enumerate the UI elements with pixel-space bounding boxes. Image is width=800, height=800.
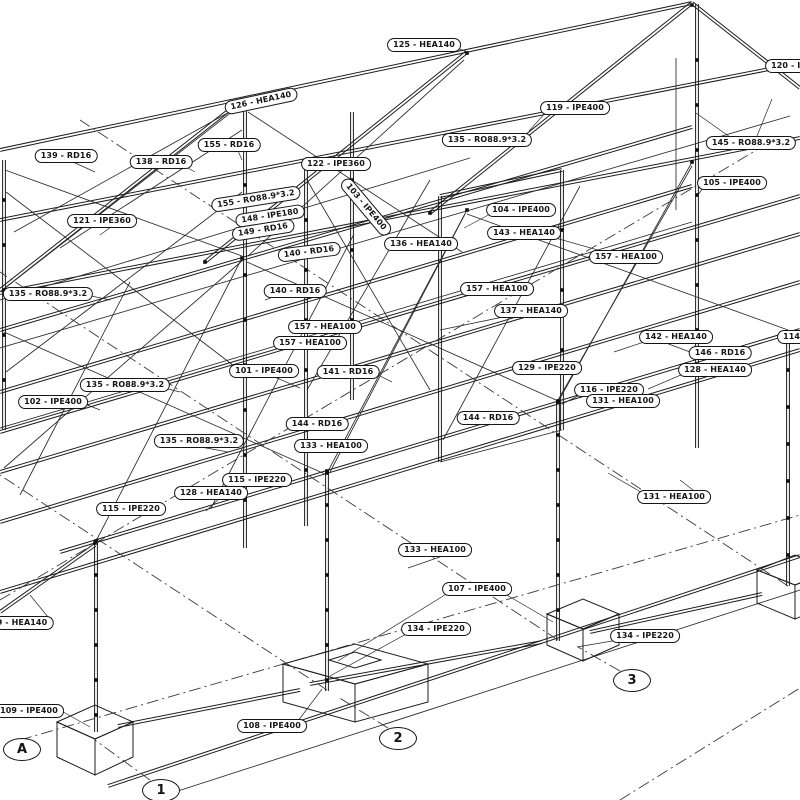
cad-drawing-canvas: 125 - HEA140126 - HEA140119 - IPE400120 … <box>0 0 800 800</box>
member-label: 136 - HEA140 <box>384 237 458 251</box>
member-label: 115 - IPE220 <box>96 502 166 516</box>
member-label: 134 - IPE220 <box>401 622 471 636</box>
member-label: 115 - IPE220 <box>222 473 292 487</box>
member-label: 135 - RO88.9*3.2 <box>442 133 532 147</box>
member-label: 140 - RD16 <box>277 241 341 263</box>
member-label: 157 - HEA100 <box>460 282 534 296</box>
member-label: 143 - HEA140 <box>487 226 561 240</box>
member-label: 157 - HEA100 <box>589 250 663 264</box>
member-label: 133 - HEA100 <box>294 439 368 453</box>
member-label: 109 - IPE400 <box>0 704 64 718</box>
member-label: 128 - HEA140 <box>174 486 248 500</box>
member-label: 120 - IPE400 <box>765 59 800 73</box>
member-label: 108 - IPE400 <box>237 719 307 733</box>
grid-axis-bubble: 2 <box>379 727 417 750</box>
member-label: 103 - IPE400 <box>338 176 394 238</box>
member-label: 146 - RD16 <box>689 346 752 360</box>
member-label: 144 - RD16 <box>286 417 349 431</box>
member-label: 135 - RO88.9*3.2 <box>80 378 170 392</box>
member-label: 138 - RD16 <box>130 155 193 169</box>
member-label: 139 - RD16 <box>35 149 98 163</box>
member-label: 157 - HEA100 <box>273 336 347 350</box>
member-label: 131 - HEA100 <box>637 490 711 504</box>
member-label: 137 - HEA140 <box>494 304 568 318</box>
member-label: 155 - RD16 <box>198 138 261 152</box>
member-label: 125 - HEA140 <box>387 38 461 52</box>
member-label: 134 - IPE220 <box>610 629 680 643</box>
member-label: 142 - HEA140 <box>639 330 713 344</box>
member-label: 131 - HEA100 <box>586 394 660 408</box>
member-label: 104 - IPE400 <box>486 203 556 217</box>
member-label: 140 - RD16 <box>264 284 327 298</box>
grid-axis-bubble: A <box>3 738 41 761</box>
member-label: 119 - IPE400 <box>540 101 610 115</box>
member-label: 144 - RD16 <box>457 411 520 425</box>
member-label: 122 - IPE360 <box>301 157 371 171</box>
member-label: 157 - HEA100 <box>288 320 362 334</box>
grid-axis-bubble: 3 <box>613 669 651 692</box>
member-labels-layer: 125 - HEA140126 - HEA140119 - IPE400120 … <box>0 0 800 800</box>
member-label: 126 - HEA140 <box>223 86 298 115</box>
grid-axis-bubble: 1 <box>142 779 180 800</box>
member-label: 135 - RO88.9*3.2 <box>154 434 244 448</box>
member-label: 129 - IPE220 <box>512 361 582 375</box>
member-label: 145 - RO88.9*3.2 <box>706 136 796 150</box>
member-label: 107 - IPE400 <box>442 582 512 596</box>
member-label: 141 - RD16 <box>317 365 380 379</box>
member-label: 133 - HEA100 <box>398 543 472 557</box>
member-label: 114 - IPE220 <box>777 330 800 344</box>
member-label: 121 - IPE360 <box>67 214 137 228</box>
member-label: 101 - IPE400 <box>229 364 299 378</box>
member-label: 102 - IPE400 <box>18 395 88 409</box>
member-label: 105 - IPE400 <box>697 176 767 190</box>
member-label: 128 - HEA140 <box>678 363 752 377</box>
member-label: 9 - HEA140 <box>0 616 53 630</box>
member-label: 135 - RO88.9*3.2 <box>3 287 93 301</box>
